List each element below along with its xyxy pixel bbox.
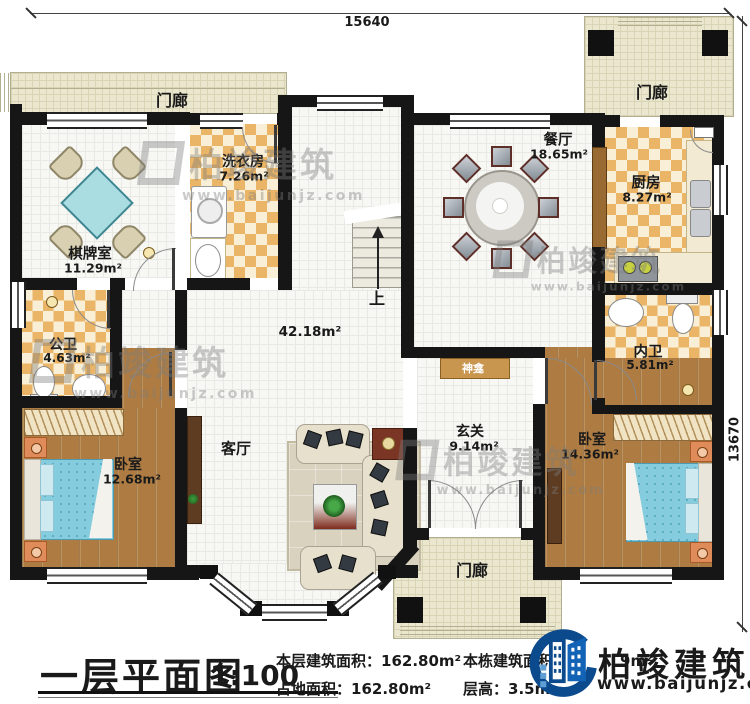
footprint-row: 占地面积：162.80m²: [276, 678, 431, 699]
window: [712, 290, 728, 335]
porch-column: [397, 597, 423, 623]
footprint-value: 162.80m²: [351, 680, 431, 698]
nightstand: [24, 437, 47, 458]
window: [580, 567, 672, 584]
bay-window: [262, 604, 327, 621]
wardrobe: [24, 409, 124, 436]
wall: [110, 278, 125, 290]
chair: [491, 146, 512, 167]
stairs-direction-label: 上: [369, 285, 385, 309]
wall: [592, 405, 712, 414]
window: [712, 165, 728, 215]
kitchen-sink: [690, 180, 711, 208]
window: [450, 113, 550, 129]
wall: [278, 95, 292, 290]
ceiling-lamp: [46, 296, 58, 308]
wall: [175, 408, 187, 580]
bedroom-right-passage-floor: [538, 347, 592, 358]
wall: [592, 125, 605, 147]
floor-area-row: 本层建筑面积：162.80m²: [276, 650, 461, 671]
chair: [538, 197, 559, 218]
wall: [712, 115, 724, 165]
wall: [10, 567, 47, 580]
dimension-width: 15640: [337, 15, 397, 30]
plant: [188, 494, 198, 504]
wall: [403, 428, 417, 552]
dining-table-center: [492, 198, 508, 214]
wall: [592, 283, 724, 295]
porch-column: [702, 30, 728, 56]
porch-column: [588, 30, 614, 56]
door-leaf: [545, 358, 548, 404]
wall: [110, 290, 122, 408]
porch-steps: [618, 17, 702, 29]
toilet-bowl: [672, 303, 694, 334]
door-leaf: [274, 125, 277, 163]
door-leaf: [107, 290, 110, 328]
wall: [175, 290, 187, 350]
window: [47, 112, 147, 129]
ceiling-lamp: [682, 384, 694, 396]
burner: [623, 261, 636, 274]
chair: [491, 248, 512, 269]
cabinet-decor: [382, 437, 395, 450]
nightstand: [24, 541, 47, 562]
wall: [417, 528, 429, 540]
wall: [147, 112, 190, 125]
floor-plan: 门廊 门廊 门廊 棋牌室 11.29m² 洗衣房 7.26m² 餐厅 18.65…: [0, 0, 750, 704]
room-area: 14.36m²: [561, 447, 619, 462]
wall: [292, 95, 317, 107]
window: [200, 113, 243, 129]
burner: [639, 261, 652, 274]
bed-pillow: [685, 503, 699, 534]
laundry-sink: [195, 244, 221, 277]
bed-pillow: [685, 468, 699, 499]
wall: [712, 215, 724, 290]
sofa-pillow: [326, 429, 344, 447]
wall: [408, 113, 450, 125]
shrine-label: 神龛: [462, 360, 484, 376]
doorway-wood-frame: [592, 147, 607, 249]
room-area: 5.81m²: [626, 358, 673, 372]
wall: [190, 113, 200, 125]
nightstand: [690, 441, 713, 462]
storey-height-label: 层高：: [463, 680, 508, 698]
wall: [660, 115, 694, 127]
bed-pillow: [40, 500, 54, 532]
door-leaf: [519, 480, 522, 528]
dimension-line: [30, 13, 730, 14]
wall: [672, 567, 724, 580]
bathroom-sink: [608, 298, 644, 327]
wall: [10, 104, 22, 580]
room-label: 客厅: [221, 438, 251, 459]
floor-area-label: 本层建筑面积：: [276, 652, 381, 670]
chair: [443, 197, 464, 218]
porch-steps: [0, 73, 10, 112]
room-area: 12.68m²: [103, 472, 161, 487]
wall: [521, 528, 533, 540]
door-leaf: [169, 352, 172, 396]
stairs-arrow-line: [377, 237, 379, 289]
stairs-arrow-head: [372, 226, 384, 238]
wall: [550, 113, 605, 125]
floor-area-value: 162.80m²: [381, 652, 461, 670]
sofa-pillow: [371, 519, 389, 537]
wardrobe: [613, 414, 714, 441]
door-leaf: [594, 360, 597, 400]
window: [47, 567, 147, 584]
porch-column: [520, 597, 546, 623]
wall: [712, 335, 724, 580]
door-leaf: [428, 480, 431, 528]
toilet-bowl: [33, 366, 55, 398]
living-nook-floor: [122, 290, 175, 348]
room-label: 门廊: [456, 557, 488, 581]
room-label: 门廊: [636, 79, 668, 103]
wall: [592, 295, 605, 362]
window: [10, 282, 26, 328]
footprint-label: 占地面积：: [276, 680, 351, 698]
dimension-height: 13670: [728, 410, 743, 470]
door-leaf: [172, 248, 175, 290]
wall: [401, 347, 538, 358]
room-area: 9.14m²: [449, 439, 498, 454]
wall: [533, 404, 545, 567]
nightstand: [690, 542, 713, 563]
washing-machine-drum: [197, 198, 223, 224]
wall: [533, 567, 580, 580]
porch-top-left-floor: [10, 72, 287, 114]
bed-sheet-fold: [626, 463, 652, 540]
room-area: 11.29m²: [64, 261, 122, 276]
room-area: 4.63m²: [43, 351, 90, 365]
bed-headboard: [24, 459, 41, 540]
wall: [22, 396, 122, 408]
bed-pillow: [40, 464, 54, 496]
room-area: 18.65m²: [530, 147, 588, 162]
room-area: 42.18m²: [279, 324, 342, 340]
wall: [22, 278, 77, 290]
wall: [10, 112, 47, 125]
wall: [401, 95, 414, 347]
dimension-line: [742, 16, 743, 632]
dresser: [547, 468, 562, 544]
room-area: 8.27m²: [622, 190, 671, 205]
wall: [533, 347, 545, 358]
plant: [323, 495, 345, 517]
company-logo-url: www.baijunjz.com: [597, 674, 750, 693]
company-logo-icon: [524, 628, 602, 704]
bay-corner: [378, 565, 396, 579]
wall: [187, 278, 250, 290]
kitchen-sink: [690, 209, 711, 237]
window: [317, 95, 383, 111]
room-label: 门廊: [156, 87, 188, 111]
wall: [605, 115, 620, 127]
porch-step-line: [10, 88, 285, 89]
room-area: 7.26m²: [219, 169, 268, 184]
tv-cabinet: [187, 416, 202, 524]
